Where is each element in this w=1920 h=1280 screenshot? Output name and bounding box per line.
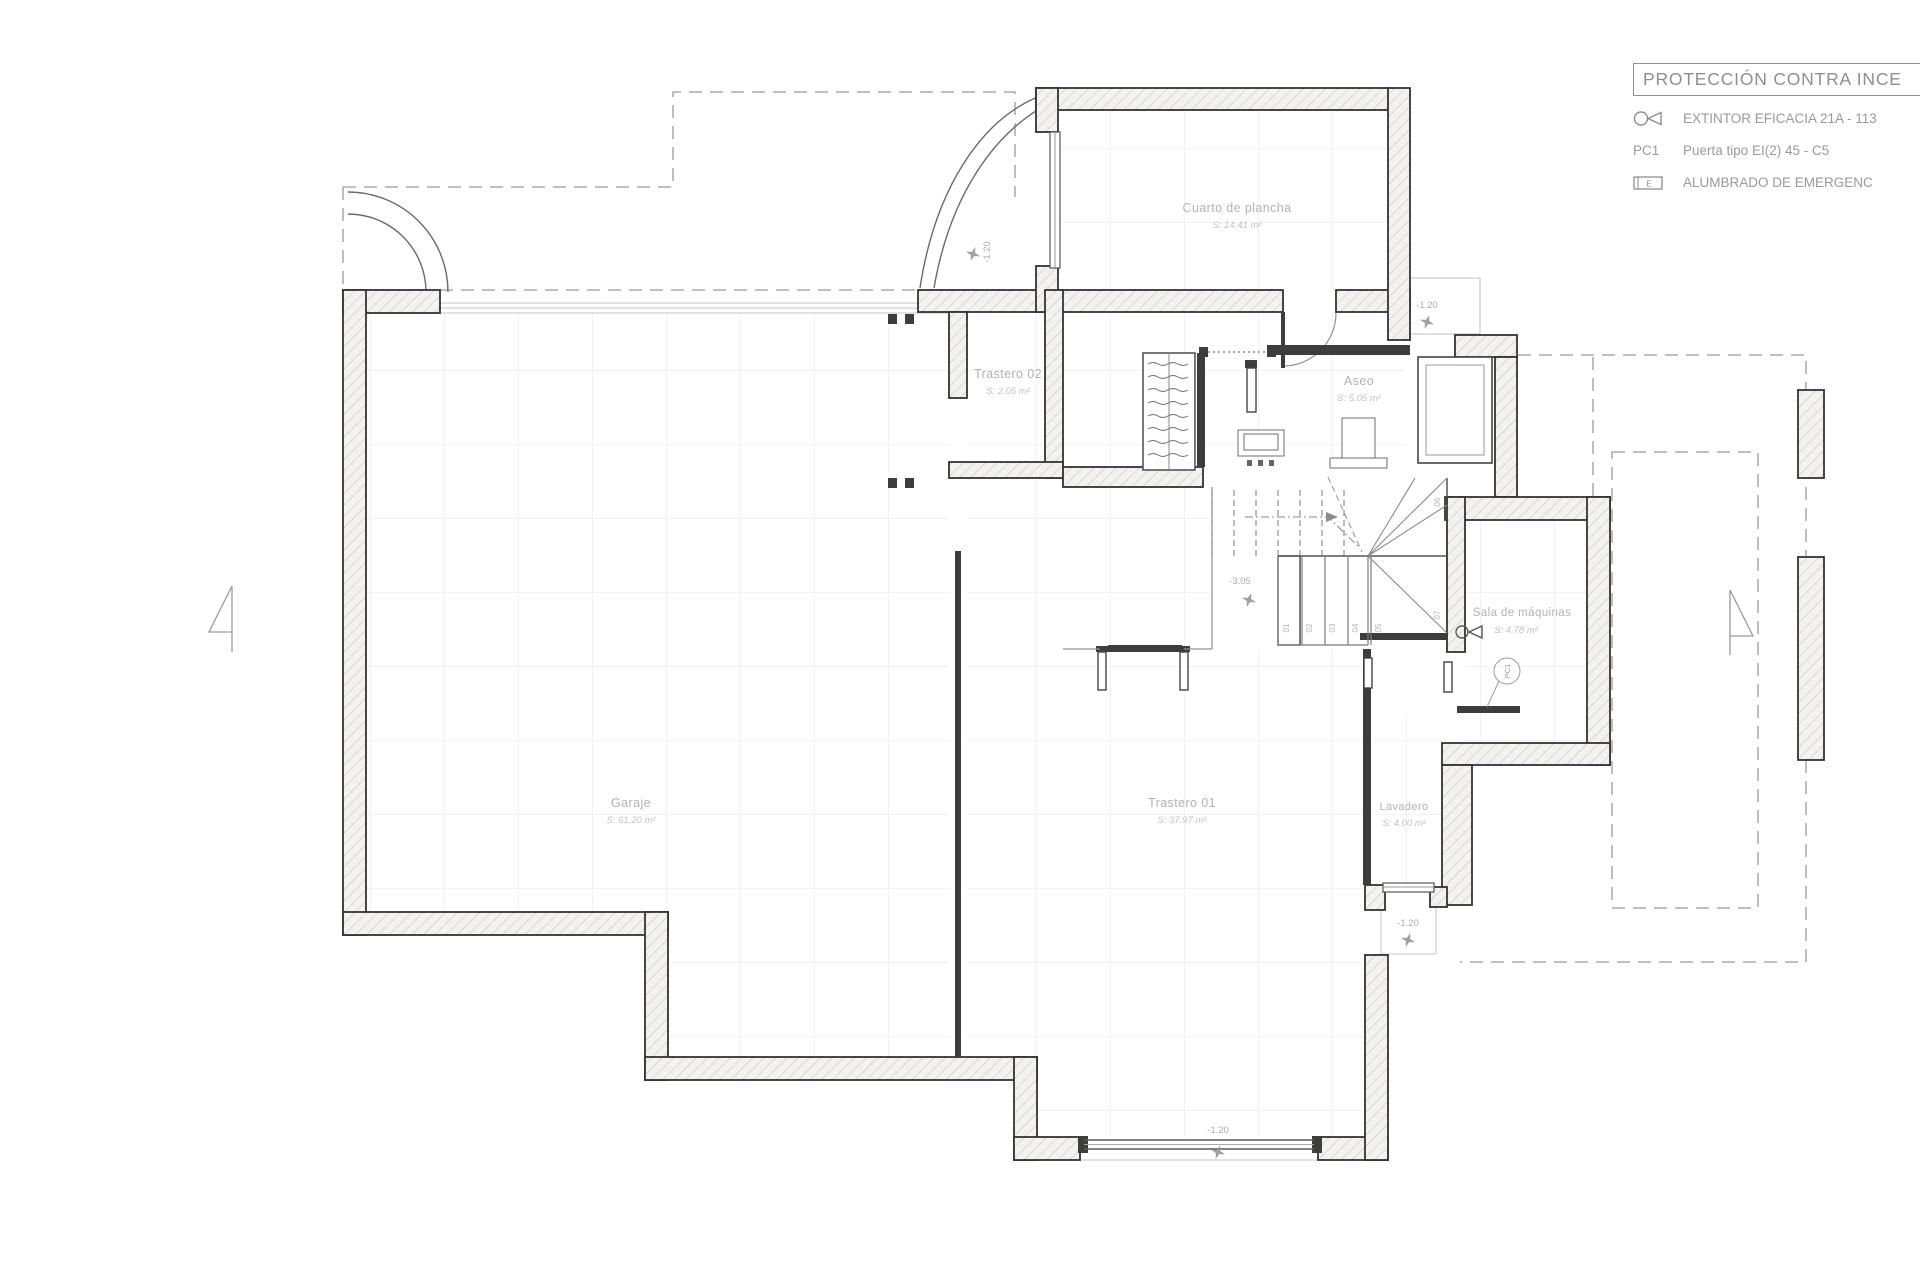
stair-step-06: 06 (1433, 497, 1442, 506)
extinguisher-icon (1633, 109, 1671, 128)
room-area-cuarto-plancha: S: 14.41 m² (1212, 220, 1262, 231)
room-area-trastero-01: S: 37.97 m² (1157, 815, 1207, 826)
stair-step-01: 01 (1282, 623, 1291, 632)
shelving-unit (1143, 353, 1195, 470)
legend-item-extintor: EXTINTOR EFICACIA 21A - 113 (1633, 106, 1920, 131)
level-lightwell: -1.20 (1416, 300, 1438, 311)
stair-direction-line (1245, 517, 1360, 548)
door-ref-label: PC1 (1503, 664, 1512, 679)
fire-protection-legend: PROTECCIÓN CONTRA INCE EXTINTOR EFICACIA… (1633, 63, 1920, 195)
stair-step-02: 02 (1305, 623, 1314, 632)
legend-item-label: ALUMBRADO DE EMERGENC (1683, 175, 1873, 190)
bottom-sliding-door (1084, 1140, 1314, 1149)
room-label-trastero-01: Trastero 01 (1148, 796, 1216, 810)
legend-item-puerta: PC1 Puerta tipo EI(2) 45 - C5 (1633, 138, 1920, 163)
room-area-trastero-02: S: 2.05 m² (986, 386, 1031, 397)
legend-item-label: EXTINTOR EFICACIA 21A - 113 (1683, 111, 1877, 126)
stair-upper-flight-dashed (1212, 490, 1344, 556)
legend-item-code: PC1 (1633, 143, 1671, 158)
section-arrow-left (209, 586, 232, 652)
level-lavadero: -1.20 (1397, 918, 1419, 929)
legend-item-label: Puerta tipo EI(2) 45 - C5 (1683, 143, 1829, 158)
stair-step-04: 04 (1351, 623, 1360, 632)
room-label-sala-maquinas: Sala de máquinas (1473, 607, 1571, 619)
emergency-light-icon: E (1633, 175, 1671, 191)
level-bottom-door: -1.20 (1207, 1125, 1229, 1136)
legend-title: PROTECCIÓN CONTRA INCE (1633, 63, 1920, 96)
room-area-aseo: S: 5.05 m² (1337, 393, 1382, 404)
stair-step-03: 03 (1328, 623, 1337, 632)
stair-direction-arrow (1326, 512, 1338, 522)
room-label-trastero-02: Trastero 02 (974, 367, 1042, 381)
room-label-garaje: Garaje (611, 796, 651, 810)
floor-plan-canvas: Cuarto de plancha S: 14.41 m² Trastero 0… (0, 0, 1920, 1280)
level-arc-door: -1.20 (982, 241, 993, 263)
level-stairs: -3.05 (1229, 576, 1251, 587)
stair-step-05: 05 (1374, 623, 1383, 632)
emergency-light-letter: E (1646, 179, 1651, 188)
stair-cut-line (1328, 477, 1362, 552)
staircase (1212, 477, 1447, 645)
room-label-lavadero: Lavadero (1379, 801, 1428, 813)
section-arrow-right (1730, 590, 1753, 655)
stair-step-07: 07 (1433, 610, 1442, 619)
room-label-aseo: Aseo (1344, 374, 1374, 388)
legend-item-alumbrado: E ALUMBRADO DE EMERGENC (1633, 170, 1920, 195)
room-area-garaje: S: 61.20 m² (606, 815, 656, 826)
room-area-sala-maquinas: S: 4.78 m² (1494, 625, 1539, 636)
room-label-cuarto-plancha: Cuarto de plancha (1183, 201, 1292, 215)
room-area-lavadero: S: 4.00 m² (1382, 818, 1427, 829)
